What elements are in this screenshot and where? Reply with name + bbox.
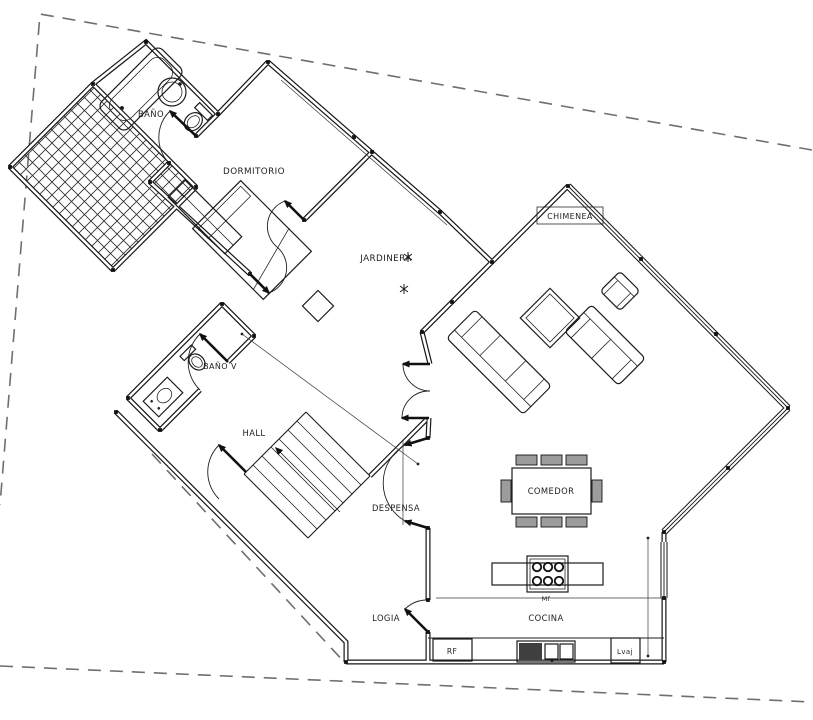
room-label-logia: LOGIA [372,613,400,623]
round-washbasin [158,78,186,106]
room-label-comedor: COMEDOR [528,486,575,496]
chair [566,517,587,527]
drainboard [519,643,542,660]
doors [159,111,430,632]
armchair [600,271,640,311]
kitchen-island [492,556,603,592]
sink-basin [560,644,573,659]
room-labels: BAÑO DORMITORIO JARDINERA CHIMENEA BAÑO … [138,109,633,656]
room-label-cocina: COCINA [528,613,563,623]
chair [541,455,562,465]
reference-lines [241,80,662,657]
label-refrigerator: RF [447,647,457,656]
room-label-chimenea: CHIMENEA [547,212,593,221]
burner-rings [533,563,563,585]
label-island-mark: Mf [542,595,551,603]
floorplan-canvas: BAÑO DORMITORIO JARDINERA CHIMENEA BAÑO … [0,0,813,720]
room-label-bano-v: BAÑO V [203,361,237,371]
sofa-3-seat [447,310,552,415]
chair [516,517,537,527]
room-label-jardinera: JARDINERA [359,254,411,264]
chair [501,480,511,502]
room-label-bano: BAÑO [138,109,164,119]
nightstand [302,290,333,321]
label-dishwasher: Lvaj [617,648,633,656]
floor-plan-page: BAÑO DORMITORIO JARDINERA CHIMENEA BAÑO … [0,0,813,720]
room-label-despensa: DESPENSA [372,503,420,513]
toilet [180,103,213,136]
room-label-dormitorio: DORMITORIO [223,167,285,177]
coffee-table [520,288,579,347]
cooktop [527,556,568,592]
sofa-2-seat [565,305,646,386]
chair [516,455,537,465]
faucet [550,658,553,661]
chair [541,517,562,527]
sink-basin [545,644,558,659]
bathtub [97,45,185,133]
room-label-hall: HALL [243,428,266,438]
chair [566,455,587,465]
chair [592,480,602,502]
